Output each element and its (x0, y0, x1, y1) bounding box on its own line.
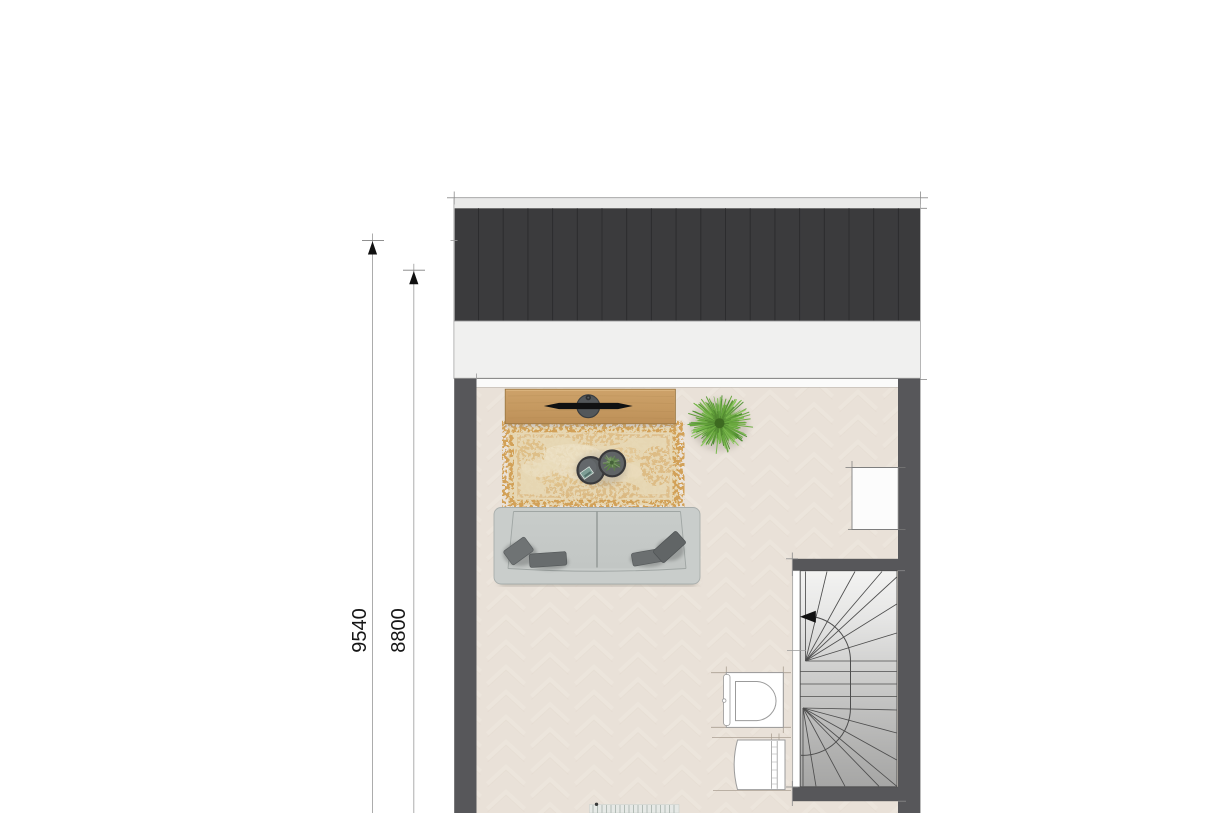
svg-text:8800: 8800 (388, 608, 410, 653)
svg-text:9540: 9540 (349, 608, 371, 653)
